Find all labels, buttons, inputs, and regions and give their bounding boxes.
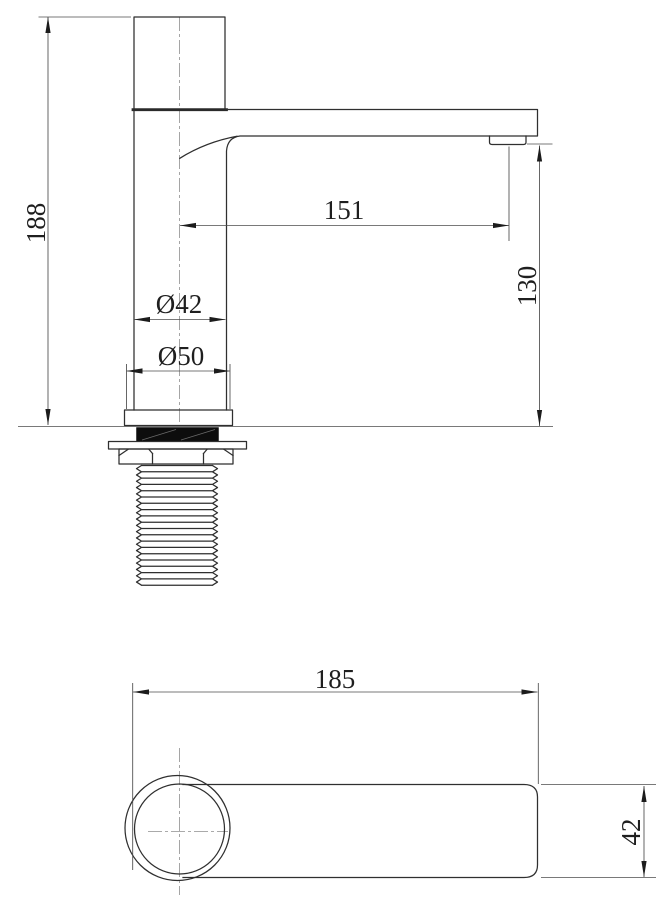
dim-overall-height: 188	[21, 17, 131, 425]
dim-base-diameter: Ø50	[127, 341, 231, 409]
dim-label-overall-height: 188	[21, 203, 51, 244]
washer-plate	[109, 442, 247, 450]
dim-body-diameter: Ø42	[134, 289, 226, 322]
dim-label-outlet-height: 130	[512, 266, 542, 307]
top-view: 185 42	[125, 664, 656, 895]
dim-label-spout-reach: 151	[324, 195, 365, 225]
rubber-gasket	[137, 428, 219, 442]
aerator-outline	[490, 136, 527, 145]
drawing-canvas: 188 151 130 Ø42	[0, 0, 670, 898]
dim-spout-reach: 151	[180, 147, 509, 242]
side-view: 188 151 130 Ø42	[18, 17, 553, 585]
mounting-nut	[119, 449, 233, 464]
base-flange	[125, 410, 233, 426]
spout-outline	[225, 110, 538, 411]
dim-label-base-diameter: Ø50	[158, 341, 205, 371]
dim-label-body-diameter: Ø42	[156, 289, 203, 319]
plan-spout-body	[183, 785, 538, 878]
dim-overall-length: 185	[133, 664, 539, 870]
dim-label-spout-width: 42	[616, 819, 646, 846]
spout-fillet-curve	[180, 136, 237, 158]
faucet-technical-drawing: 188 151 130 Ø42	[0, 0, 670, 898]
dim-label-overall-length: 185	[315, 664, 356, 694]
dim-spout-width: 42	[541, 785, 656, 878]
threaded-shank	[137, 466, 218, 586]
plan-base-outer-circle	[125, 776, 230, 881]
dim-outlet-height: 130	[512, 144, 553, 426]
